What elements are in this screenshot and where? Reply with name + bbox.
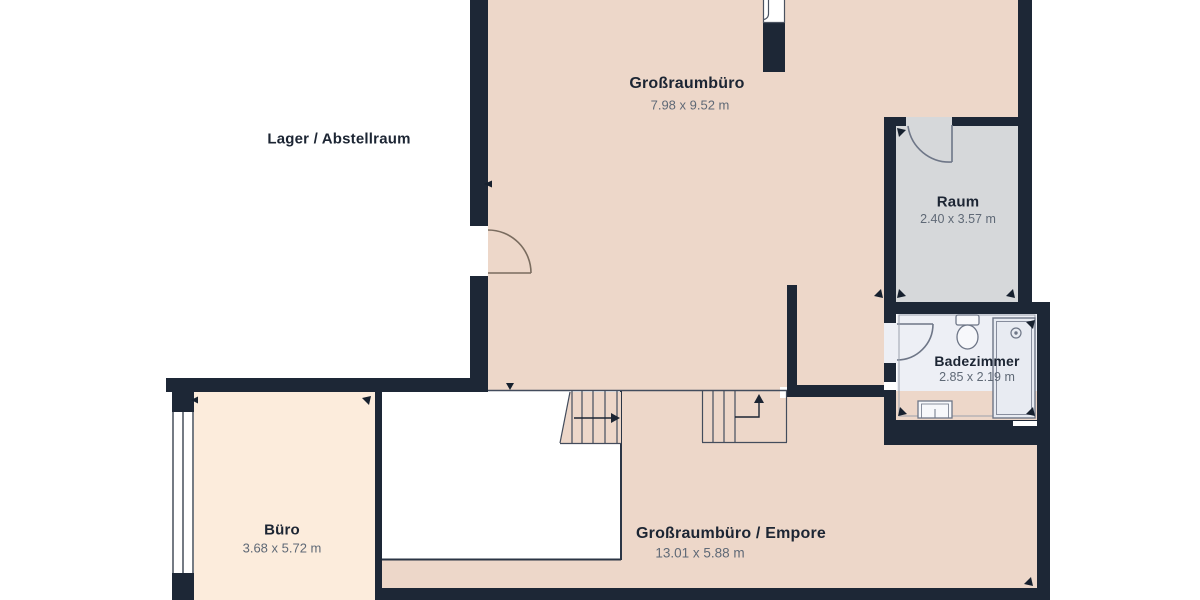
toilet [956,315,979,349]
floorplan-linework [0,0,1200,600]
room-label-lager: Lager / Abstellraum [267,131,410,148]
door-raum [908,125,952,162]
door-badezimmer [897,324,933,360]
room-label-empore: Großraumbüro / Empore [636,525,826,543]
floor-plan: Lager / Abstellraum Großraumbüro 7.98 x … [0,0,1200,600]
room-dims-badezimmer: 2.85 x 2.19 m [939,370,1015,384]
room-label-badezimmer: Badezimmer [934,353,1019,369]
room-label-raum: Raum [937,194,979,211]
room-label-grossraumbuero: Großraumbüro [629,75,744,93]
staircase-lower [560,391,621,444]
sink [918,401,952,418]
room-dims-buero: 3.68 x 5.72 m [243,541,322,556]
door-top [764,0,785,23]
window-glass-lines [173,412,193,573]
room-dims-empore: 13.01 x 5.88 m [655,546,744,561]
room-dims-raum: 2.40 x 3.57 m [920,212,996,226]
stair-up-arrow [735,394,764,417]
room-dims-grossraumbuero: 7.98 x 9.52 m [651,98,730,113]
door-grossraumbuero [488,230,531,273]
room-label-buero: Büro [264,522,300,539]
corner-ticks [191,128,1035,586]
